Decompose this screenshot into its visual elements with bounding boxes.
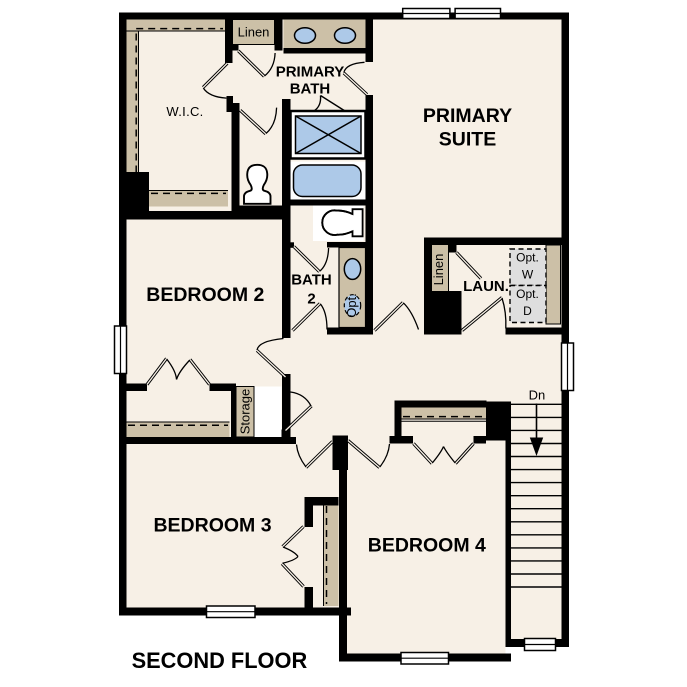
svg-text:BEDROOM 4: BEDROOM 4 <box>368 535 486 557</box>
svg-text:BEDROOM 2: BEDROOM 2 <box>146 284 264 306</box>
svg-text:Opt.: Opt. <box>516 287 539 301</box>
svg-text:SUITE: SUITE <box>439 129 496 151</box>
svg-text:Storage: Storage <box>238 389 253 435</box>
svg-text:W.I.C.: W.I.C. <box>166 104 203 119</box>
svg-text:LAUN.: LAUN. <box>463 278 509 295</box>
svg-text:BEDROOM 3: BEDROOM 3 <box>153 515 271 537</box>
svg-text:Linen: Linen <box>431 254 446 286</box>
svg-text:BATH: BATH <box>291 272 332 289</box>
svg-text:BATH: BATH <box>290 81 331 98</box>
svg-text:2: 2 <box>307 291 315 308</box>
svg-text:Opt.: Opt. <box>344 293 359 318</box>
svg-text:Dn: Dn <box>529 388 546 403</box>
svg-text:D: D <box>523 304 532 318</box>
svg-text:W: W <box>522 268 534 282</box>
svg-text:SECOND FLOOR: SECOND FLOOR <box>132 648 308 673</box>
svg-text:Linen: Linen <box>238 25 270 40</box>
svg-text:PRIMARY: PRIMARY <box>276 64 345 81</box>
svg-text:PRIMARY: PRIMARY <box>423 105 512 127</box>
svg-text:Opt.: Opt. <box>516 251 539 265</box>
